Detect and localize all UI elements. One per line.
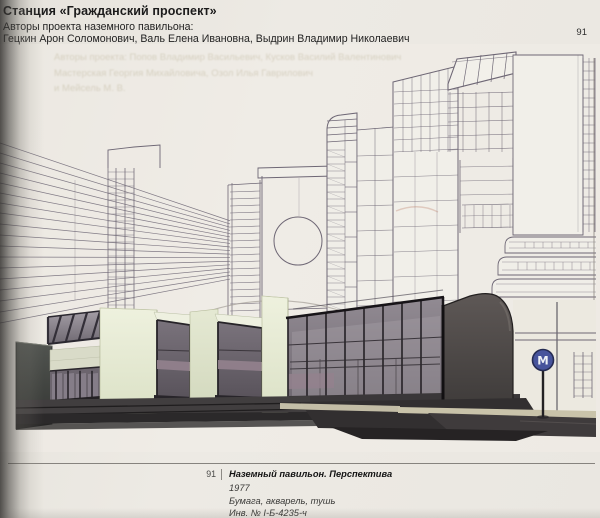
page-header: Станция «Гражданский проспект» Авторы пр… xyxy=(3,4,410,46)
showthrough-line: Авторы проекта: Попов Владимир Васильеви… xyxy=(54,50,506,66)
scanned-book-page: Авторы проекта: Попов Владимир Васильеви… xyxy=(0,0,600,518)
ground-steps xyxy=(16,396,596,441)
caption-medium: Бумага, акварель, тушь xyxy=(229,495,392,507)
station-title: Станция «Гражданский проспект» xyxy=(3,4,410,19)
caption-title: Наземный павильон. Перспектива xyxy=(229,468,392,480)
showthrough-line: и Мейсель М. В. xyxy=(54,81,506,97)
drawing-paper-area xyxy=(0,44,600,452)
metro-sign-icon xyxy=(533,350,554,371)
caption-inventory: Инв. № I-Б-4235-ч xyxy=(229,507,392,518)
metro-pavilion-watercolor xyxy=(16,290,520,429)
caption-block: 91 Наземный павильон. Перспектива 1977 Б… xyxy=(205,468,392,518)
metro-sign-letter: М xyxy=(537,354,548,368)
caption-divider xyxy=(221,469,222,480)
showthrough-line: Мастерская Георгия Михайловича, Озол Иль… xyxy=(54,66,506,82)
showthrough-text: Авторы проекта: Попов Владимир Васильеви… xyxy=(54,50,506,97)
authors-label: Авторы проекта наземного павильона: xyxy=(3,21,410,33)
caption-year: 1977 xyxy=(229,482,392,494)
page-number: 91 xyxy=(576,27,587,38)
metro-sign-base xyxy=(537,415,549,419)
authors-names: Гецкин Арон Соломонович, Валь Елена Иван… xyxy=(3,33,410,45)
background-buildings-lineart xyxy=(0,52,596,418)
caption-rule xyxy=(8,463,595,464)
caption-number: 91 xyxy=(205,468,216,480)
metro-sign: М xyxy=(533,350,554,419)
